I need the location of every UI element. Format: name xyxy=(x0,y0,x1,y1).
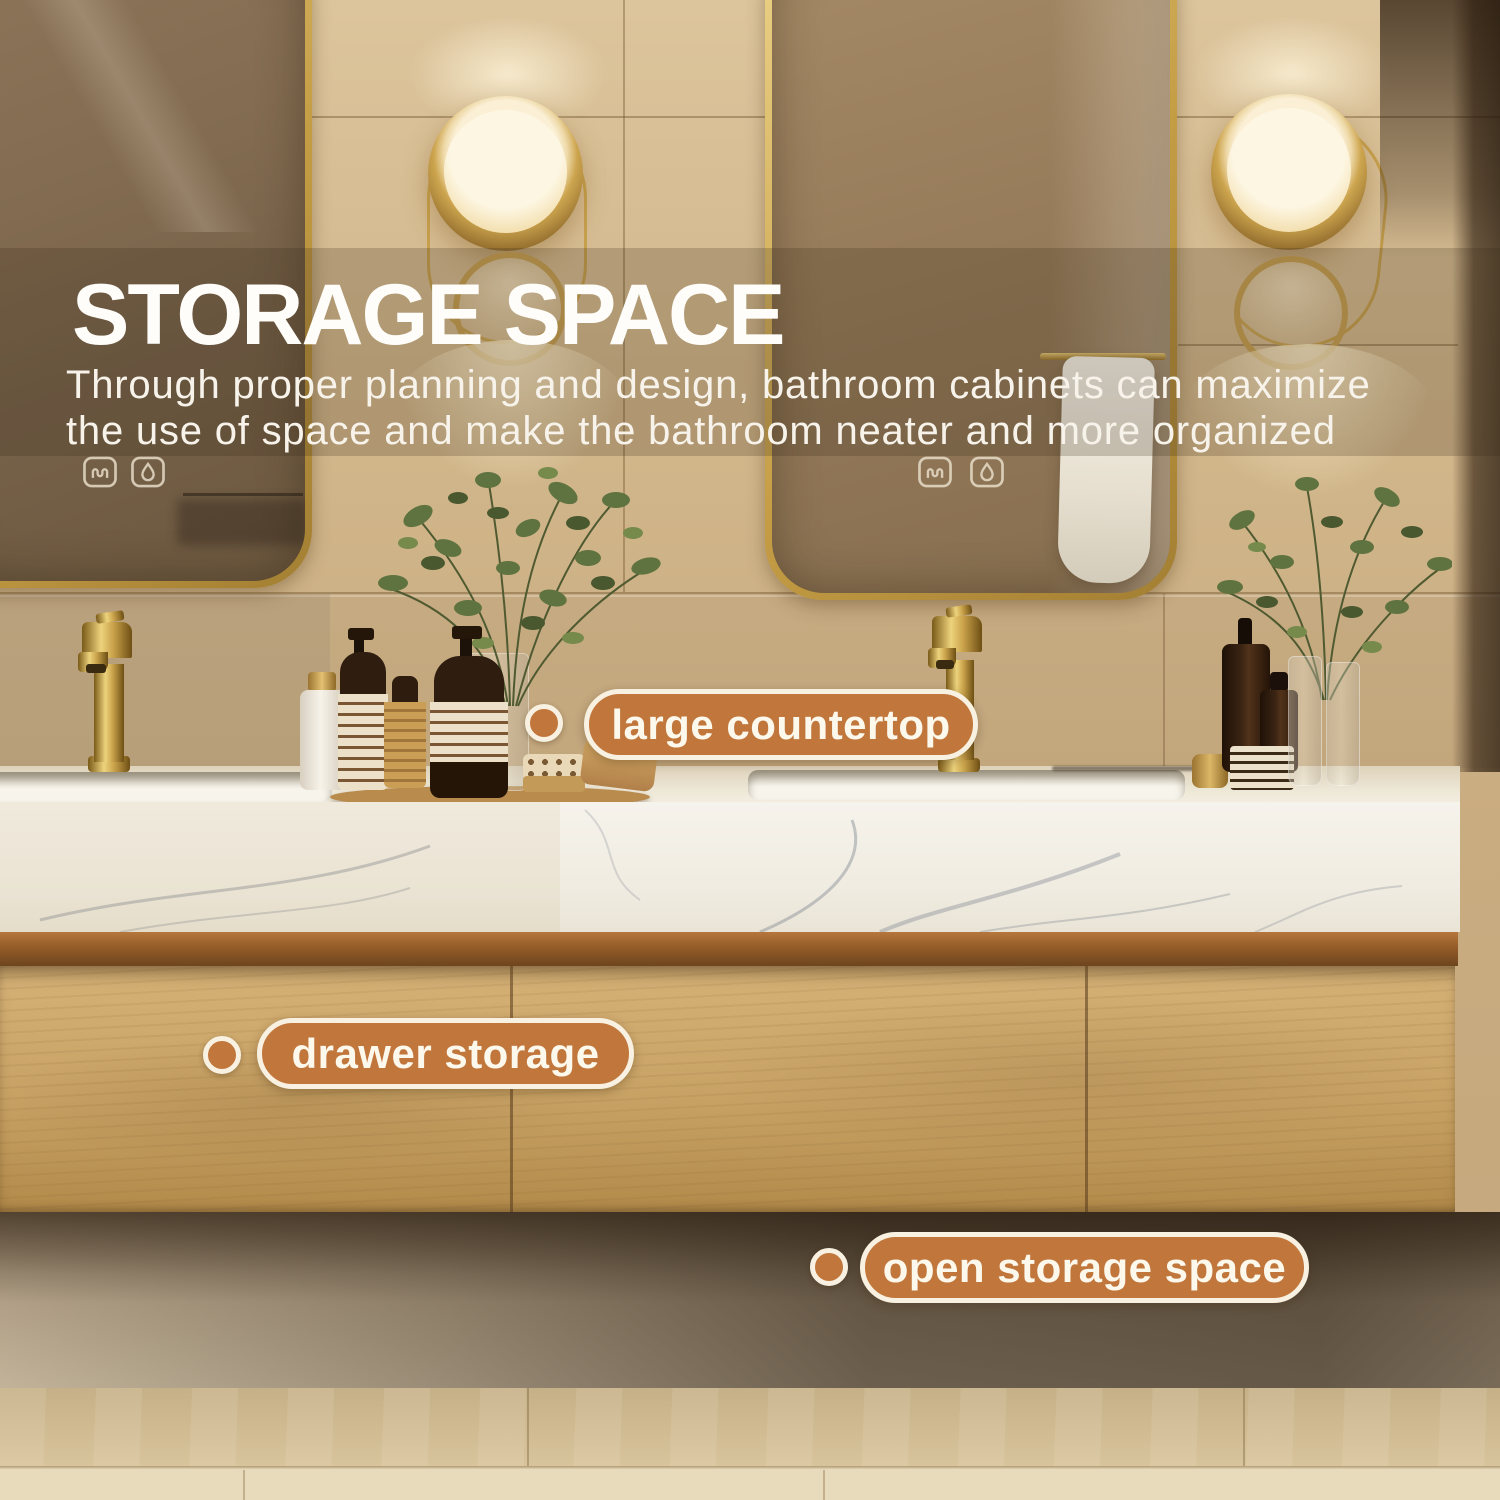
faucet-right-shadow xyxy=(936,660,954,669)
dropper-cap xyxy=(1238,618,1252,646)
floor-tiles xyxy=(0,1470,1500,1500)
gold-jar-cap xyxy=(308,672,336,692)
bottle-base xyxy=(430,762,508,798)
drawer-seam[interactable] xyxy=(1085,966,1088,1212)
vanity-cabinet xyxy=(0,966,1455,1212)
floor-grout-line xyxy=(1243,1388,1245,1466)
floor-grout-line xyxy=(243,1470,245,1500)
bottle-shoulder xyxy=(434,656,504,706)
striped-bottle-large xyxy=(430,702,508,764)
callout-label-open-storage-space: open storage space xyxy=(860,1232,1309,1303)
callout-text: drawer storage xyxy=(291,1030,599,1078)
plant-left xyxy=(348,438,678,708)
description-text: Through proper planning and design, bath… xyxy=(66,362,1486,454)
pump-spout xyxy=(452,626,482,639)
defogger-icon[interactable] xyxy=(917,455,953,489)
gold-striped-bottle xyxy=(384,702,426,788)
floor-grout-line xyxy=(527,1388,529,1466)
faucet-right-base xyxy=(938,758,980,772)
sconce-left-top-ring xyxy=(428,96,583,251)
droplet-icon[interactable] xyxy=(130,455,166,489)
defogger-icon[interactable] xyxy=(82,455,118,489)
glass-vase xyxy=(1326,662,1360,786)
sconce-right-top-ring xyxy=(1211,94,1367,250)
counter-trim-strip xyxy=(0,932,1458,966)
page-title: STORAGE SPACE xyxy=(72,266,1472,365)
drawer-seam[interactable] xyxy=(510,966,513,1212)
sconce-right-light xyxy=(1227,108,1351,232)
description-line-2: the use of space and make the bathroom n… xyxy=(66,408,1486,454)
faucet-right-head[interactable] xyxy=(932,616,982,652)
glass-vase xyxy=(1288,656,1322,786)
shelf-reflection xyxy=(177,499,305,545)
striped-bottle xyxy=(338,694,388,790)
wood-brush-base xyxy=(523,776,585,792)
floor xyxy=(0,1388,1500,1466)
product-photo: STORAGE SPACE Through proper planning an… xyxy=(0,0,1500,1500)
description-line-1: Through proper planning and design, bath… xyxy=(66,362,1486,408)
sconce-left-light xyxy=(444,110,567,233)
faucet-left-body xyxy=(94,664,124,762)
callout-text: open storage space xyxy=(883,1244,1286,1292)
mirror-reflection-streak xyxy=(0,0,305,232)
amber-cap xyxy=(1270,672,1288,692)
callout-dot-drawer-storage xyxy=(203,1036,241,1074)
towel-rack-reflection xyxy=(183,493,303,496)
droplet-icon[interactable] xyxy=(969,455,1005,489)
callout-label-drawer-storage: drawer storage xyxy=(257,1018,634,1089)
striped-box xyxy=(1230,746,1294,790)
callout-dot-large-countertop xyxy=(525,704,563,742)
callout-label-large-countertop: large countertop xyxy=(584,689,978,760)
bottle-shoulder xyxy=(340,652,386,696)
pump-spout xyxy=(348,628,374,640)
backsplash-panel xyxy=(0,594,330,768)
callout-dot-open-storage-space xyxy=(810,1248,848,1286)
sink-basin-right xyxy=(748,770,1185,800)
callout-text: large countertop xyxy=(611,701,950,749)
sink-basin-left xyxy=(0,772,332,802)
countertop-warm-tint xyxy=(0,802,560,932)
floor-grout-line xyxy=(823,1470,825,1500)
faucet-left-shadow xyxy=(86,664,106,673)
sink-gap-shadow xyxy=(1052,766,1200,771)
